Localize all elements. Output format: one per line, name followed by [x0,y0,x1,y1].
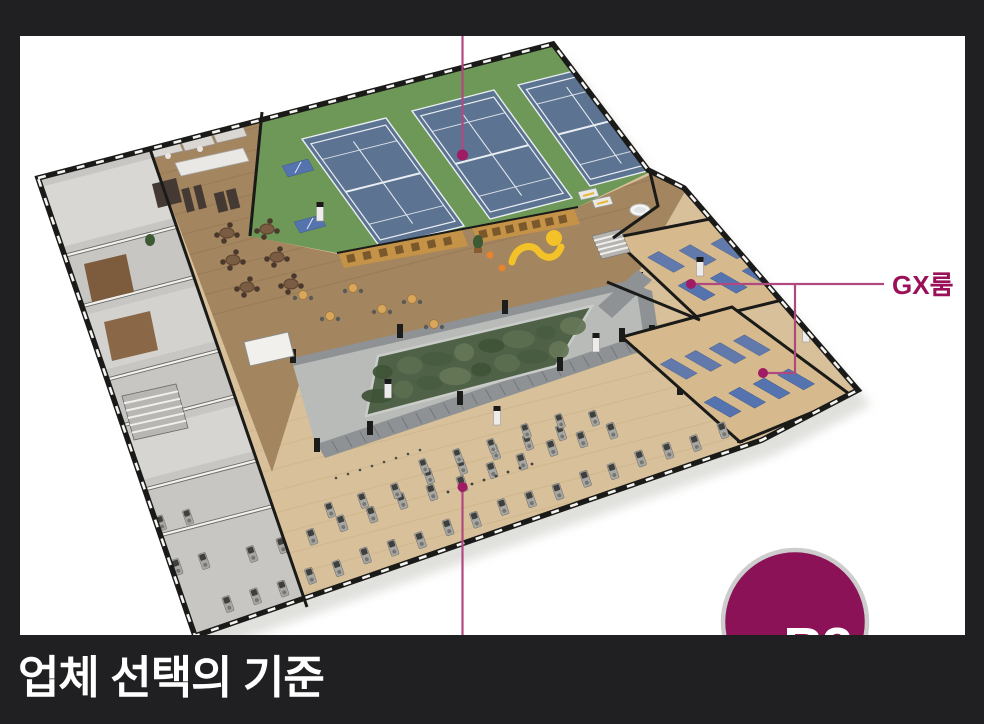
callout-dot-gym [458,482,468,492]
reception-desk [66,440,126,474]
yellow-ball [546,230,562,246]
sink-counter [72,336,91,352]
bath-tub-basin [634,207,646,213]
floorplan-illustration [20,36,965,635]
reception-chair [94,482,102,490]
title-bar: 업체 선택의 기준 [0,635,984,724]
slide: { "page": { "bg": "#202022" }, "panel": … [0,0,984,724]
slide-title: 업체 선택의 기준 [0,635,984,721]
callout-dot-gx1 [686,279,696,289]
potted-plant [145,234,155,246]
sink-counter [56,288,75,304]
floor-badge-label: B2 [783,615,851,636]
gx-room-label: GX룸 [892,265,954,302]
callout-dot-tennis [457,150,468,161]
floorplan-panel: B2 [20,36,965,635]
callout-dot-gx2 [758,368,768,378]
